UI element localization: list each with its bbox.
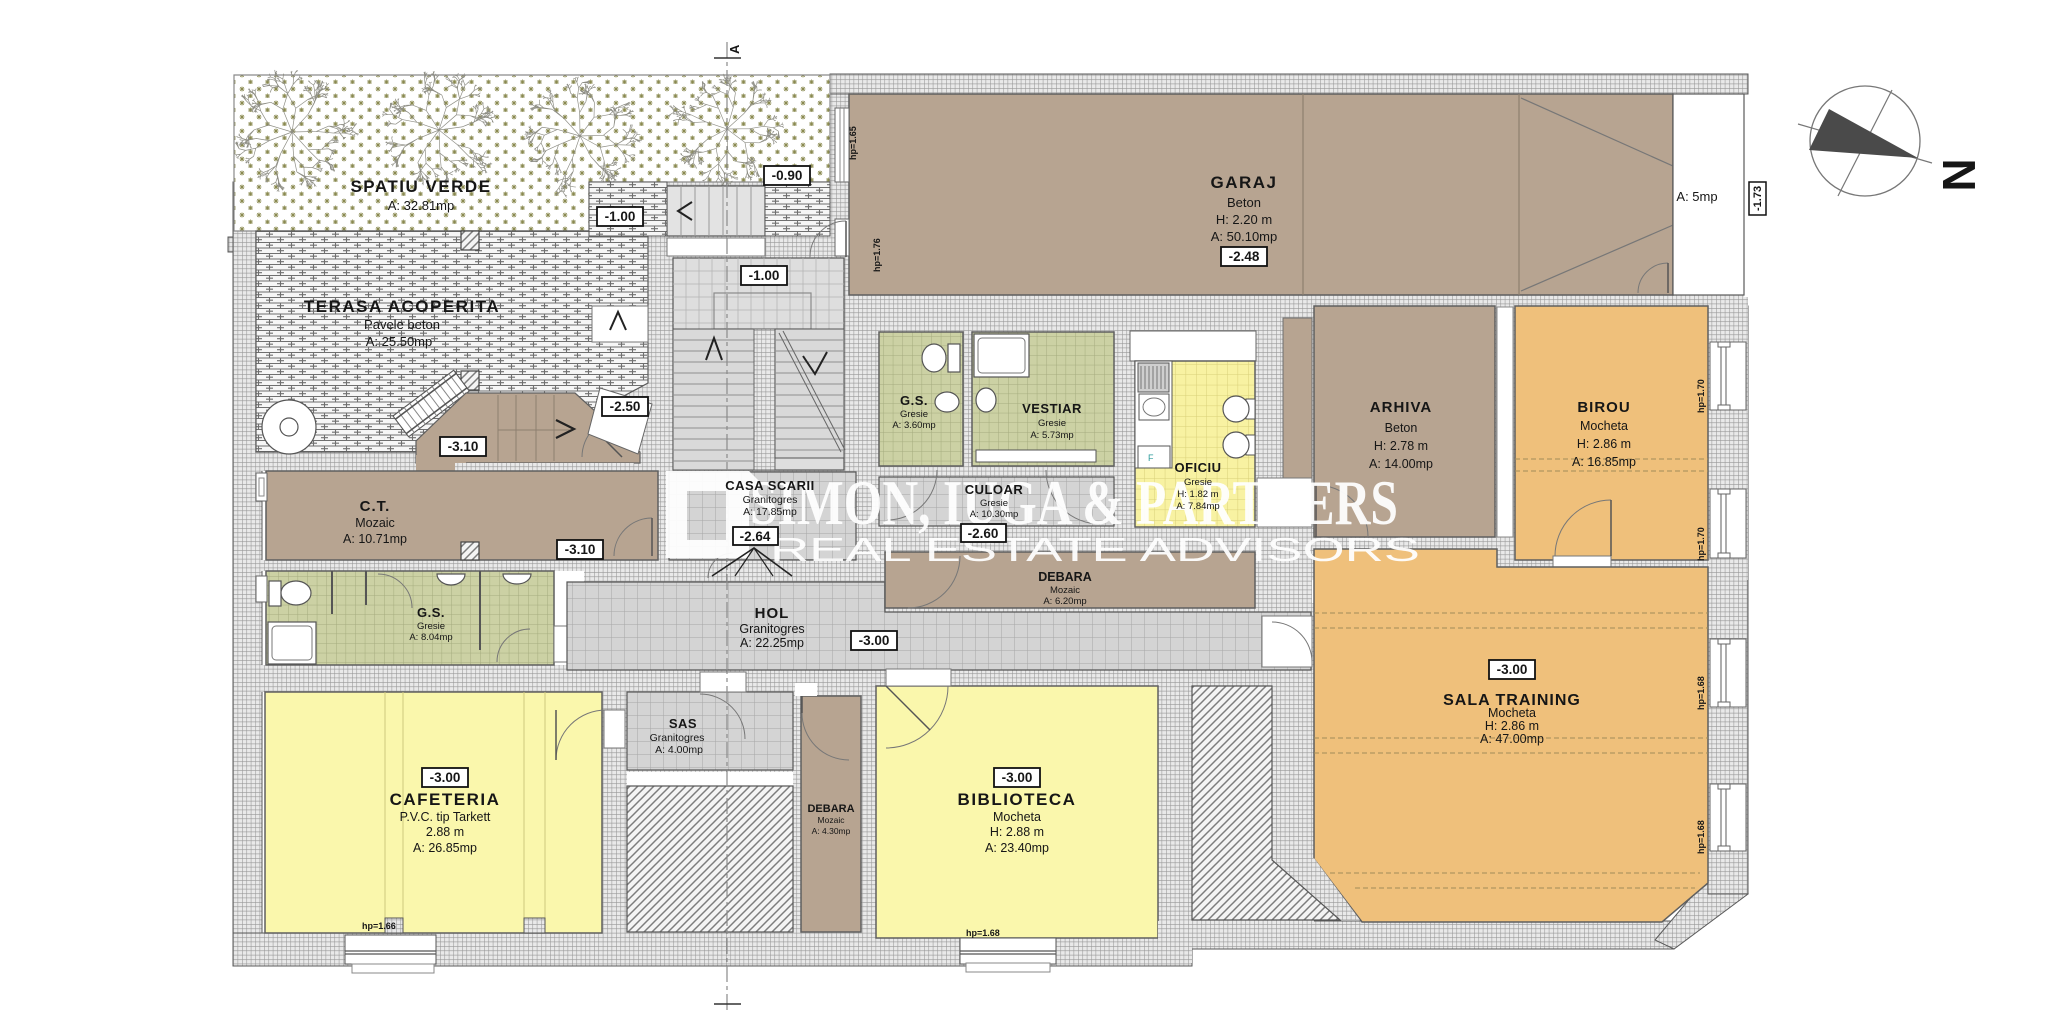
svg-text:H: 2.20 m: H: 2.20 m xyxy=(1216,212,1272,227)
svg-text:A: A xyxy=(727,44,742,54)
svg-text:Beton: Beton xyxy=(1227,195,1261,210)
svg-text:A: 8.04mp: A: 8.04mp xyxy=(409,632,452,643)
svg-text:CULOAR: CULOAR xyxy=(965,482,1024,497)
svg-text:A: 16.85mp: A: 16.85mp xyxy=(1572,455,1636,469)
svg-text:-2.60: -2.60 xyxy=(968,526,999,541)
svg-text:hp=1.76: hp=1.76 xyxy=(872,238,882,272)
svg-text:Granitogres: Granitogres xyxy=(650,732,705,744)
svg-text:ARHIVA: ARHIVA xyxy=(1370,399,1432,416)
svg-text:H: 2.86 m: H: 2.86 m xyxy=(1577,437,1631,451)
svg-text:Gresie: Gresie xyxy=(900,409,928,420)
svg-text:C.T.: C.T. xyxy=(360,498,391,515)
svg-text:H: 2.88 m: H: 2.88 m xyxy=(990,825,1044,839)
svg-text:SAS: SAS xyxy=(669,716,697,731)
svg-text:A: 17.85mp: A: 17.85mp xyxy=(743,506,797,518)
svg-text:-2.50: -2.50 xyxy=(610,399,641,414)
svg-text:hp=1.65: hp=1.65 xyxy=(848,126,858,160)
svg-text:REAL ESTATE ADVISORS: REAL ESTATE ADVISORS xyxy=(770,531,1420,568)
svg-text:GARAJ: GARAJ xyxy=(1210,173,1277,192)
svg-text:Mocheta: Mocheta xyxy=(1580,419,1628,433)
svg-text:A: 7.84mp: A: 7.84mp xyxy=(1176,501,1219,512)
svg-text:N: N xyxy=(1933,158,1985,191)
svg-text:SIMON, IUGA & PARTNERS: SIMON, IUGA & PARTNERS xyxy=(750,467,1398,538)
svg-text:H: 2.78 m: H: 2.78 m xyxy=(1374,439,1428,453)
svg-text:A: 4.00mp: A: 4.00mp xyxy=(655,744,703,756)
svg-text:SPATIU VERDE: SPATIU VERDE xyxy=(350,177,491,196)
svg-text:-1.00: -1.00 xyxy=(749,268,780,283)
svg-text:-3.00: -3.00 xyxy=(1002,770,1033,785)
svg-text:A: 32.81mp: A: 32.81mp xyxy=(388,198,455,213)
svg-text:Gresie: Gresie xyxy=(417,621,445,632)
svg-text:Mozaic: Mozaic xyxy=(1050,585,1080,596)
svg-text:-2.64: -2.64 xyxy=(740,529,771,544)
svg-text:A: 3.60mp: A: 3.60mp xyxy=(892,420,935,431)
svg-text:DEBARA: DEBARA xyxy=(807,803,854,815)
svg-text:-3.00: -3.00 xyxy=(430,770,461,785)
svg-text:hp=1.66: hp=1.66 xyxy=(362,921,396,931)
svg-text:H: 2.86 m: H: 2.86 m xyxy=(1485,719,1539,733)
svg-text:F: F xyxy=(1148,453,1154,463)
svg-text:A: 25.50mp: A: 25.50mp xyxy=(366,334,433,349)
svg-text:OFICIU: OFICIU xyxy=(1174,460,1221,475)
svg-text:A: 47.00mp: A: 47.00mp xyxy=(1480,732,1544,746)
svg-text:Mozaic: Mozaic xyxy=(355,516,395,530)
svg-text:VESTIAR: VESTIAR xyxy=(1022,401,1082,416)
svg-text:Pavele beton: Pavele beton xyxy=(364,317,440,332)
svg-text:CASA SCARII: CASA SCARII xyxy=(725,478,815,493)
svg-text:Mocheta: Mocheta xyxy=(993,810,1041,824)
svg-text:A: 10.71mp: A: 10.71mp xyxy=(343,532,407,546)
svg-text:Granitogres: Granitogres xyxy=(739,622,804,636)
svg-text:P.V.C. tip Tarkett: P.V.C. tip Tarkett xyxy=(400,810,491,824)
svg-text:BIBLIOTECA: BIBLIOTECA xyxy=(958,790,1077,809)
svg-text:hp=1.70: hp=1.70 xyxy=(1696,527,1706,561)
svg-text:H: 1.82 m: H: 1.82 m xyxy=(1177,489,1218,500)
svg-text:Gresie: Gresie xyxy=(1038,418,1066,429)
svg-text:Mocheta: Mocheta xyxy=(1488,706,1536,720)
svg-text:-3.00: -3.00 xyxy=(859,633,890,648)
svg-text:A: 14.00mp: A: 14.00mp xyxy=(1369,457,1433,471)
svg-text:TERASA ACOPERITA: TERASA ACOPERITA xyxy=(304,297,500,316)
svg-text:G.S.: G.S. xyxy=(417,605,445,620)
svg-text:G.S.: G.S. xyxy=(900,393,928,408)
svg-text:A: 5mp: A: 5mp xyxy=(1676,189,1717,204)
svg-text:Granitogres: Granitogres xyxy=(743,494,798,506)
svg-text:Beton: Beton xyxy=(1385,421,1418,435)
svg-text:hp=1.68: hp=1.68 xyxy=(1696,820,1706,854)
svg-text:DEBARA: DEBARA xyxy=(1038,570,1091,584)
svg-text:-3.10: -3.10 xyxy=(448,439,479,454)
svg-text:A: 10.30mp: A: 10.30mp xyxy=(970,509,1019,520)
svg-text:hp=1.70: hp=1.70 xyxy=(1696,379,1706,413)
svg-text:-2.48: -2.48 xyxy=(1229,249,1260,264)
svg-text:Gresie: Gresie xyxy=(980,498,1008,509)
svg-text:A: 50.10mp: A: 50.10mp xyxy=(1211,229,1278,244)
svg-text:CAFETERIA: CAFETERIA xyxy=(390,790,501,809)
svg-text:hp=1.68: hp=1.68 xyxy=(966,928,1000,938)
svg-text:Gresie: Gresie xyxy=(1184,477,1212,488)
svg-text:A: 23.40mp: A: 23.40mp xyxy=(985,841,1049,855)
svg-text:-0.90: -0.90 xyxy=(772,168,803,183)
svg-text:-1.00: -1.00 xyxy=(605,209,636,224)
svg-text:A: 26.85mp: A: 26.85mp xyxy=(413,841,477,855)
svg-text:A: 4.30mp: A: 4.30mp xyxy=(812,826,851,836)
svg-text:-1.73: -1.73 xyxy=(1752,186,1764,211)
svg-text:2.88 m: 2.88 m xyxy=(426,825,464,839)
svg-text:hp=1.68: hp=1.68 xyxy=(1696,676,1706,710)
svg-text:-3.00: -3.00 xyxy=(1497,662,1528,677)
svg-text:Mozaic: Mozaic xyxy=(818,815,846,825)
svg-text:A: 6.20mp: A: 6.20mp xyxy=(1043,596,1086,607)
svg-text:-3.10: -3.10 xyxy=(565,542,596,557)
svg-text:BIROU: BIROU xyxy=(1577,399,1630,416)
svg-text:A: 22.25mp: A: 22.25mp xyxy=(740,636,804,650)
svg-text:HOL: HOL xyxy=(755,605,790,622)
svg-text:A: 5.73mp: A: 5.73mp xyxy=(1030,430,1073,441)
